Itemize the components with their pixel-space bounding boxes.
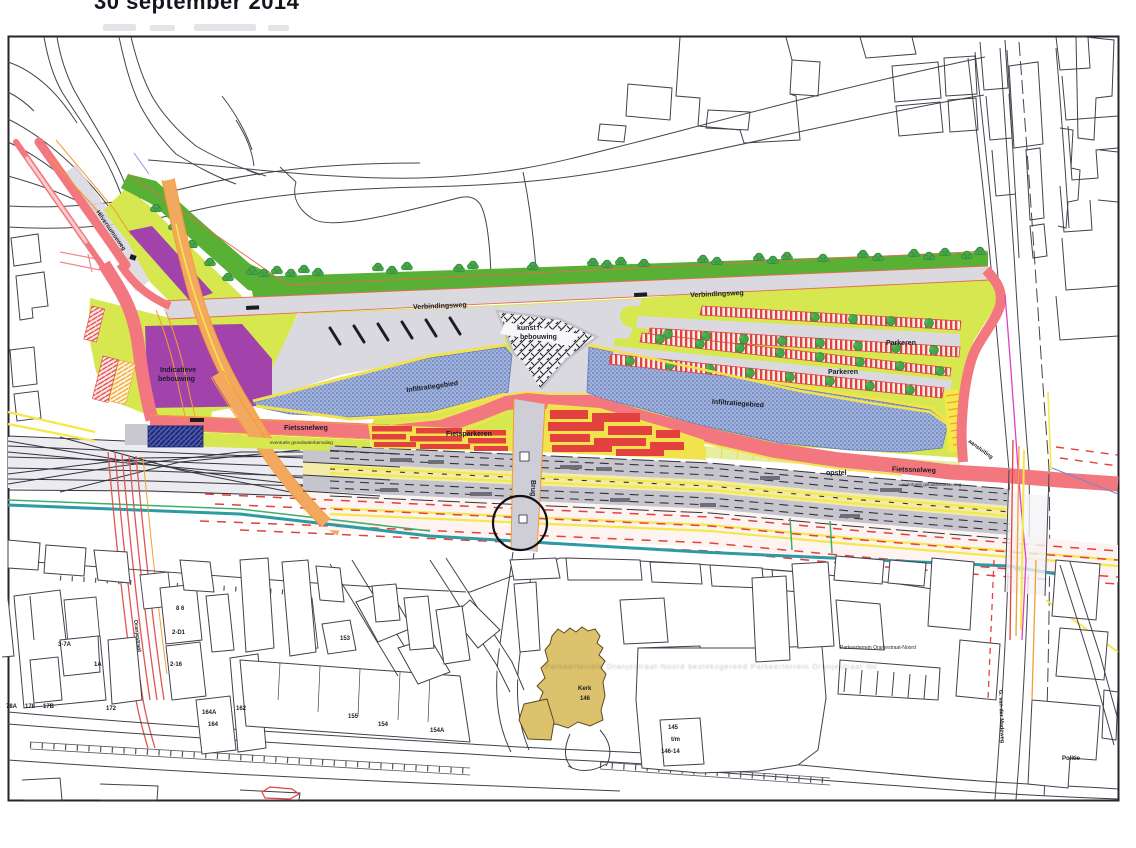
svg-text:154A: 154A <box>430 728 445 734</box>
svg-text:172: 172 <box>106 706 117 712</box>
svg-text:153: 153 <box>340 636 351 642</box>
svg-text:145: 145 <box>668 725 679 731</box>
svg-text:162: 162 <box>236 706 247 712</box>
svg-text:78A: 78A <box>6 704 18 710</box>
svg-text:Brug: Brug <box>529 480 536 496</box>
svg-text:bebouwing: bebouwing <box>158 376 195 383</box>
svg-text:Parkeren: Parkeren <box>886 340 916 347</box>
svg-text:1A: 1A <box>94 662 102 668</box>
svg-text:154: 154 <box>378 722 389 728</box>
svg-text:eventuele geluidsvoorziening: eventuele geluidsvoorziening <box>902 482 962 487</box>
svg-text:164: 164 <box>208 722 219 728</box>
svg-text:Fietsparkeren: Fietsparkeren <box>446 431 492 438</box>
svg-text:146-14: 146-14 <box>661 749 680 755</box>
svg-text:kunst /: kunst / <box>517 325 540 332</box>
svg-text:3-7A: 3-7A <box>58 642 72 648</box>
svg-text:164A: 164A <box>202 710 217 716</box>
svg-text:bebouwing: bebouwing <box>520 334 557 341</box>
svg-text:2-16: 2-16 <box>170 662 183 668</box>
svg-text:2-D1: 2-D1 <box>172 630 186 636</box>
svg-text:155: 155 <box>348 714 359 720</box>
svg-text:Kerk: Kerk <box>578 686 592 692</box>
svg-text:17B: 17B <box>43 704 55 710</box>
svg-text:Indicatieve: Indicatieve <box>160 367 196 374</box>
svg-text:Politie: Politie <box>1062 756 1081 762</box>
svg-text:Parkeren: Parkeren <box>828 369 858 376</box>
svg-text:Fietssnelweg: Fietssnelweg <box>284 425 328 432</box>
svg-text:8 6: 8 6 <box>176 606 185 612</box>
svg-text:Parkeerterrein Oranjestraat-No: Parkeerterrein Oranjestraat-Noord bestek… <box>545 662 878 671</box>
svg-text:30 september 2014: 30 september 2014 <box>94 0 300 14</box>
svg-text:t/m: t/m <box>671 737 680 743</box>
svg-text:Parkeerterrein Oranjestraat-No: Parkeerterrein Oranjestraat-Noord <box>840 645 916 651</box>
svg-text:146: 146 <box>580 696 591 702</box>
svg-text:opstel: opstel <box>826 470 847 477</box>
svg-text:eventuele grondwaterbemaling: eventuele grondwaterbemaling <box>270 440 333 445</box>
svg-text:178: 178 <box>25 704 36 710</box>
